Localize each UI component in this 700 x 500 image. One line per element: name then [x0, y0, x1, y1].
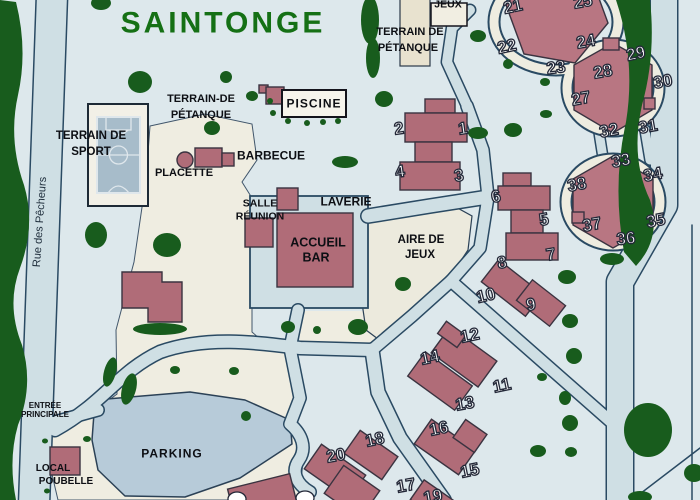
site-number-29: 29 — [625, 42, 648, 65]
site-number-38: 38 — [566, 174, 588, 197]
site-number-34: 34 — [642, 164, 664, 187]
site-number-20: 20 — [325, 445, 347, 468]
local-poubelle-line2: POUBELLE — [39, 477, 93, 488]
campsite-map: SAINTONGE TERRAIN DE PÉTANQUE JEUX PISCI… — [0, 0, 700, 500]
petanque-left-line2: PÉTANQUE — [171, 110, 231, 122]
map-title: SAINTONGE — [121, 7, 326, 39]
site-number-36: 36 — [616, 228, 637, 250]
site-number-18: 18 — [364, 428, 387, 451]
site-number-28: 28 — [592, 61, 614, 84]
piscine-label: PISCINE — [286, 98, 341, 111]
site-number-32: 32 — [598, 120, 620, 143]
site-number-31: 31 — [637, 116, 659, 139]
barbecue-label: BARBECUE — [237, 150, 305, 163]
site-number-30: 30 — [652, 71, 674, 94]
petanque-top-line1: TERRAIN DE — [376, 27, 443, 39]
accueil-bar-line2: BAR — [302, 251, 329, 264]
site-number-33: 33 — [610, 150, 632, 173]
site-number-37: 37 — [581, 214, 603, 237]
accueil-bar-line1: ACCUEIL — [290, 236, 346, 249]
petanque-left-line1: TERRAIN-DE — [167, 94, 235, 106]
site-number-12: 12 — [459, 324, 482, 347]
site-number-11: 11 — [491, 374, 513, 397]
site-number-14: 14 — [419, 346, 442, 369]
terrain-sport-line1: TERRAIN DE — [56, 130, 126, 142]
entree-line2: PRINCIPALE — [21, 411, 69, 419]
site-number-35: 35 — [645, 210, 667, 233]
terrain-sport-line2: SPORT — [71, 146, 111, 158]
petanque-top-line2: PÉTANQUE — [378, 43, 438, 55]
aire-de-jeux-line2: JEUX — [405, 249, 435, 261]
site-number-27: 27 — [570, 88, 592, 111]
site-number-22: 22 — [496, 35, 519, 58]
placette-label: PLACETTE — [155, 168, 213, 180]
laverie-label: LAVERIE — [320, 196, 371, 209]
jeux-box-label: JEUX — [434, 0, 461, 11]
site-number-13: 13 — [454, 393, 476, 416]
site-number-15: 15 — [459, 459, 482, 482]
local-poubelle-line1: LOCAL — [36, 464, 70, 475]
site-number-19: 19 — [422, 486, 444, 500]
site-number-24: 24 — [575, 31, 597, 54]
site-number-23: 23 — [545, 57, 567, 79]
aire-de-jeux-line1: AIRE DE — [398, 234, 445, 246]
site-number-16: 16 — [428, 417, 451, 440]
parking-label: PARKING — [141, 448, 202, 461]
salle-reunion-line1: SALLE — [243, 198, 277, 209]
salle-reunion-line2: RÉUNION — [236, 211, 284, 222]
site-number-17: 17 — [395, 475, 417, 498]
